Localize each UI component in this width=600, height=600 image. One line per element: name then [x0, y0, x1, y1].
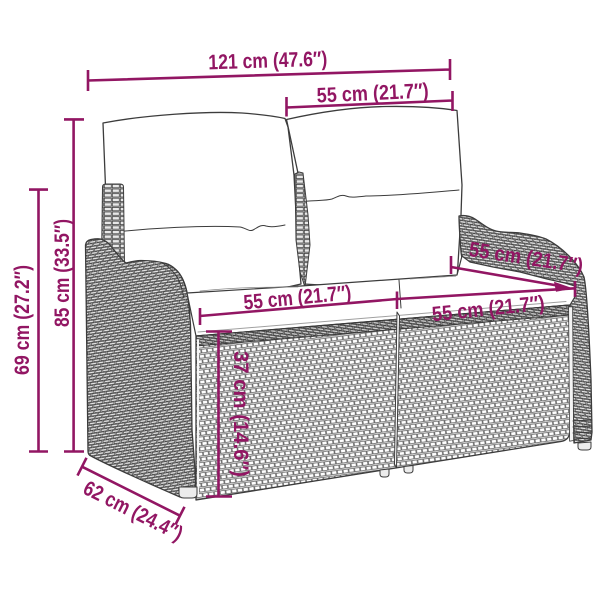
svg-text:121 cm (47.6″): 121 cm (47.6″) — [208, 48, 328, 75]
svg-text:37 cm (14.6″): 37 cm (14.6″) — [229, 351, 252, 477]
svg-text:69 cm (27.2″): 69 cm (27.2″) — [11, 265, 34, 375]
svg-text:85 cm (33.5″): 85 cm (33.5″) — [51, 219, 74, 327]
